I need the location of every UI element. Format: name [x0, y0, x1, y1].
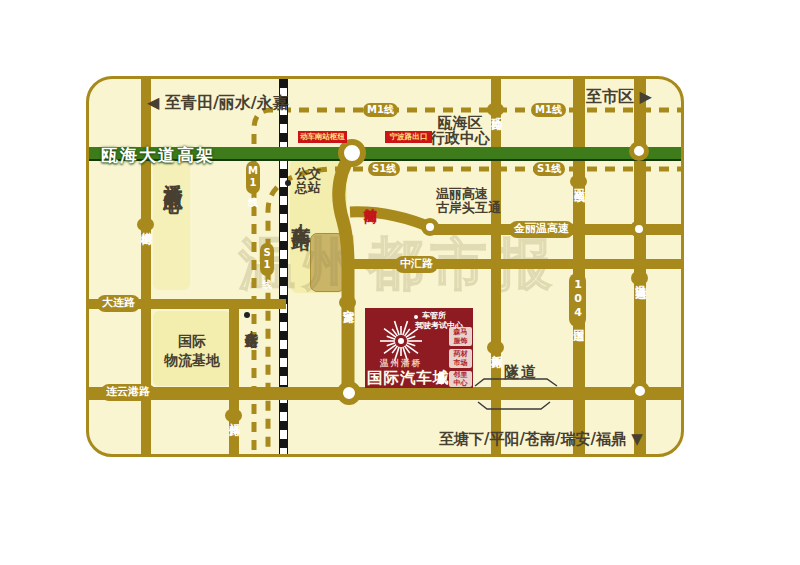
s1-label-left: S1线 [368, 162, 400, 176]
ouhai-admin-center-label: 瓯海区 行政中心 [425, 116, 495, 146]
zhanqian-business-circle-label: 站前商圈 [361, 197, 379, 201]
direction-northwest: ◀ 至青田/丽水/永嘉 [147, 93, 289, 114]
m1-label-vertical: M1线 [246, 161, 260, 194]
direction-south-text: 至塘下/平阳/苍南/瑞安/福鼎 [439, 430, 626, 448]
wenli-interchange-label: 温丽高速 古岸头互通 [436, 187, 501, 215]
ningbo-exit-tag: 宁波路出口 [385, 131, 432, 143]
bus-terminal-line1: 公交 [295, 167, 321, 181]
map-screenshot: 温州都市报 瓯 [0, 0, 800, 565]
hub-tag: 动车南站枢纽 [298, 131, 347, 143]
ningbo-label: 宁波路 [339, 296, 356, 309]
direction-northeast-text: 至市区 [586, 87, 634, 106]
left-arrow-icon: ◀ [147, 93, 159, 112]
tenant-box-semir: 森马 服饰 [449, 327, 472, 346]
g104-label: 104国道 [569, 273, 586, 327]
logistics-base-label: 国际 物流基地 [153, 332, 231, 370]
lianyungang-label: 连云港路 [101, 384, 155, 401]
fuzhou-label: 福州路 [225, 409, 242, 422]
direction-south: 至塘下/平阳/苍南/瑞安/福鼎 ▼ [439, 430, 643, 449]
m1-label-right: M1线 [531, 103, 566, 117]
tenant-neighborhood-line1: 邻里 [449, 371, 472, 380]
tenant-neighborhood-line2: 中心 [449, 379, 472, 388]
huanshan-label: 环山路 [487, 103, 504, 116]
xintong-label: 新桐路 [487, 341, 504, 354]
bus-terminal-label: 公交 总站 [295, 167, 321, 195]
road-map: 温州都市报 瓯 [86, 76, 684, 457]
panqiao-business-label: 潘桥商业中心 [161, 169, 187, 181]
ouhai-elevated-label: 瓯海大道高架 [101, 144, 215, 167]
auto-city-project-block: 车管所 驾驶考试中心 温州潘桥 国际汽车城 森马 服饰 药材 市场 [365, 308, 473, 388]
hengtang-label: 横塘街 [137, 218, 154, 231]
bus-terminal-line2: 总站 [295, 181, 321, 195]
s1-label-right: S1线 [533, 162, 565, 176]
direction-northwest-text: 至青田/丽水/永嘉 [165, 93, 289, 112]
right-arrow-icon: ▶ [640, 87, 652, 106]
logistics-line1: 国际 [153, 332, 231, 351]
wenli-line2: 古岸头互通 [436, 201, 501, 215]
tenant-box-medicine: 药材 市场 [449, 349, 472, 368]
south-station-label: 火车南站 [289, 207, 315, 219]
logistics-line2: 物流基地 [153, 351, 231, 370]
starburst-center [398, 338, 404, 344]
shuangnan-label: 双南线 [570, 175, 587, 188]
freight-station-label: 火车货运站 [242, 320, 260, 325]
m1-label-left: M1线 [363, 103, 398, 117]
tenant-semir-line2: 服饰 [449, 337, 472, 346]
tenant-box-neighborhood: 邻里 中心 [449, 371, 472, 387]
wenrui-label: 温瑞大道 [631, 271, 648, 285]
jinliwen-label: 金丽温高速 [509, 221, 574, 238]
ouhai-admin-line2: 行政中心 [425, 131, 495, 146]
freight-station-dot [244, 312, 250, 318]
tenant-semir-line1: 森马 [449, 328, 472, 337]
zhonghui-label: 中汇路 [395, 256, 438, 273]
tenant-medicine-line1: 药材 [449, 350, 472, 359]
bus-terminal-dot [285, 180, 291, 186]
tenant-medicine-line2: 市场 [449, 359, 472, 368]
direction-northeast: 至市区 ▶ [586, 87, 652, 108]
tunnel-portal-lower [478, 402, 550, 409]
wenli-line1: 温丽高速 [436, 187, 501, 201]
s1-label-vertical: S1线 [260, 243, 274, 276]
tunnel-label: 隧道 [504, 363, 538, 382]
down-arrow-icon: ▼ [631, 430, 643, 448]
dalian-label: 大连路 [97, 295, 140, 312]
fuel-pump-icon [437, 370, 447, 385]
